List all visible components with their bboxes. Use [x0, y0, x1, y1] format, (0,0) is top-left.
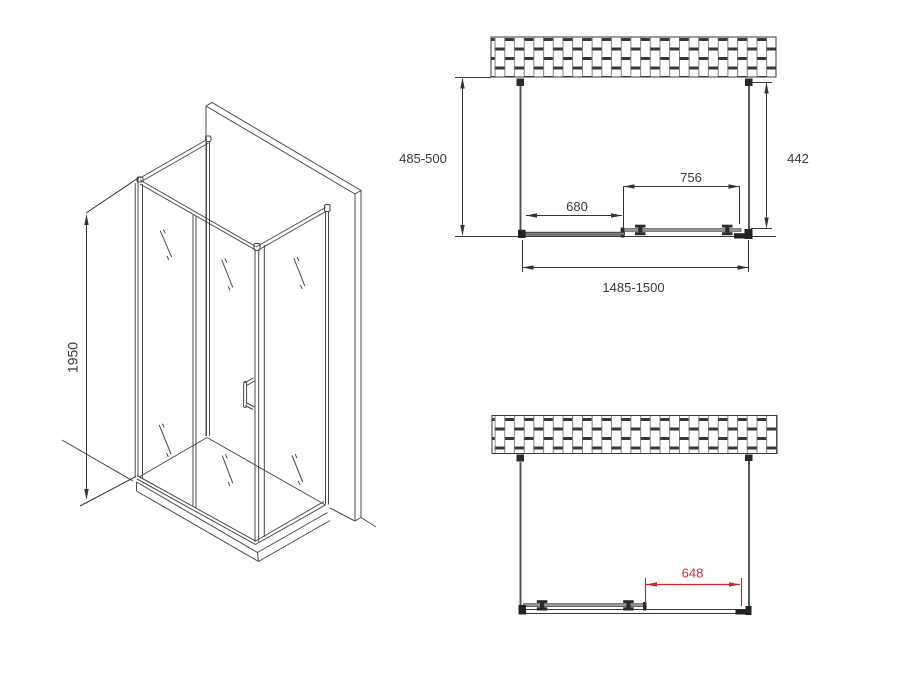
svg-text:442: 442 — [787, 151, 809, 166]
svg-text:1950: 1950 — [65, 342, 81, 373]
svg-text:756: 756 — [680, 170, 702, 185]
svg-text:648: 648 — [682, 566, 704, 581]
svg-text:485-500: 485-500 — [399, 151, 447, 166]
svg-text:1485-1500: 1485-1500 — [602, 280, 664, 295]
svg-text:680: 680 — [566, 199, 588, 214]
